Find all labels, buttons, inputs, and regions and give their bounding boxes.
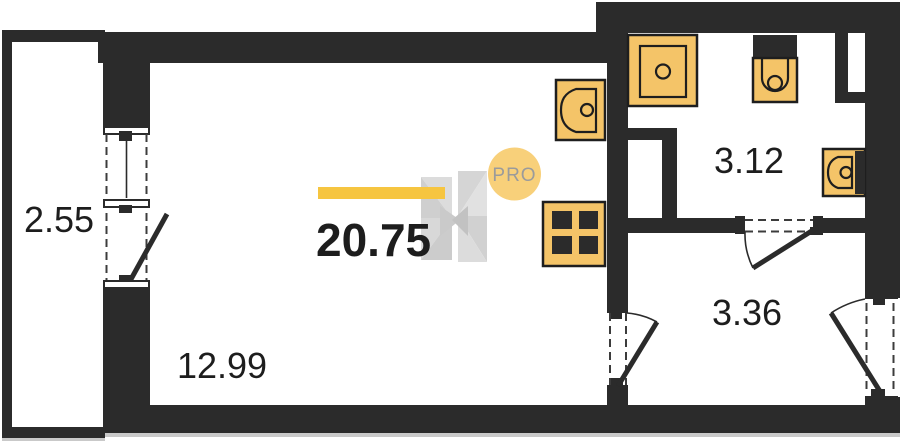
hallway-area-label: 3.36: [712, 292, 782, 333]
window-frame-post: [119, 131, 132, 141]
wall-segment: [865, 2, 900, 298]
pro-badge: PRO: [488, 148, 541, 201]
shadow-line: [103, 433, 900, 437]
stove-burner: [552, 211, 572, 229]
floor-plan: PRO 2.55 12.99 20.75 3.12 3.36: [0, 0, 900, 442]
door-jamb: [607, 385, 628, 393]
vent-shaft-wall: [848, 92, 867, 103]
living-room-area-label: 12.99: [177, 345, 267, 386]
door-jamb: [865, 396, 898, 405]
window-frame: [104, 281, 149, 288]
toilet: [753, 35, 797, 102]
wall-segment: [2, 30, 105, 42]
door-jamb: [607, 305, 628, 313]
pro-badge-label: PRO: [492, 165, 536, 186]
stove: [543, 202, 605, 266]
wall-segment: [2, 427, 105, 438]
bathroom-area-label: 3.12: [714, 140, 784, 181]
shower: [628, 35, 697, 106]
wall-segment: [103, 405, 900, 433]
wall-segment: [2, 30, 12, 438]
door-hinge-block: [611, 313, 622, 319]
door-hinge-block: [873, 299, 885, 305]
window-frame-post: [119, 275, 132, 282]
wall-segment: [98, 32, 596, 63]
wall-segment: [607, 33, 628, 305]
duct-wall: [662, 128, 677, 233]
door-jamb: [735, 216, 745, 234]
accent-bar: [318, 187, 445, 199]
wall-segment: [628, 218, 743, 233]
stove-burner: [579, 236, 598, 254]
wall-segment: [103, 32, 150, 127]
vent-shaft-wall: [835, 33, 848, 103]
wall-segment: [820, 218, 865, 233]
washbasin-mount: [855, 151, 865, 194]
toilet-tank: [753, 35, 797, 58]
door-jamb: [865, 290, 898, 299]
balcony-area-label: 2.55: [24, 199, 94, 240]
stove-burner: [552, 236, 572, 254]
total-area-label: 20.75: [316, 214, 431, 266]
wall-segment: [596, 2, 900, 33]
toilet-body: [753, 58, 797, 102]
floor-plan-canvas: PRO 2.55 12.99 20.75 3.12 3.36: [0, 0, 900, 442]
washbasin: [823, 149, 865, 196]
shadow-line: [2, 438, 105, 441]
kitchen-sink: [556, 80, 605, 140]
stove-burner: [579, 211, 598, 229]
window-frame-post: [119, 205, 132, 213]
